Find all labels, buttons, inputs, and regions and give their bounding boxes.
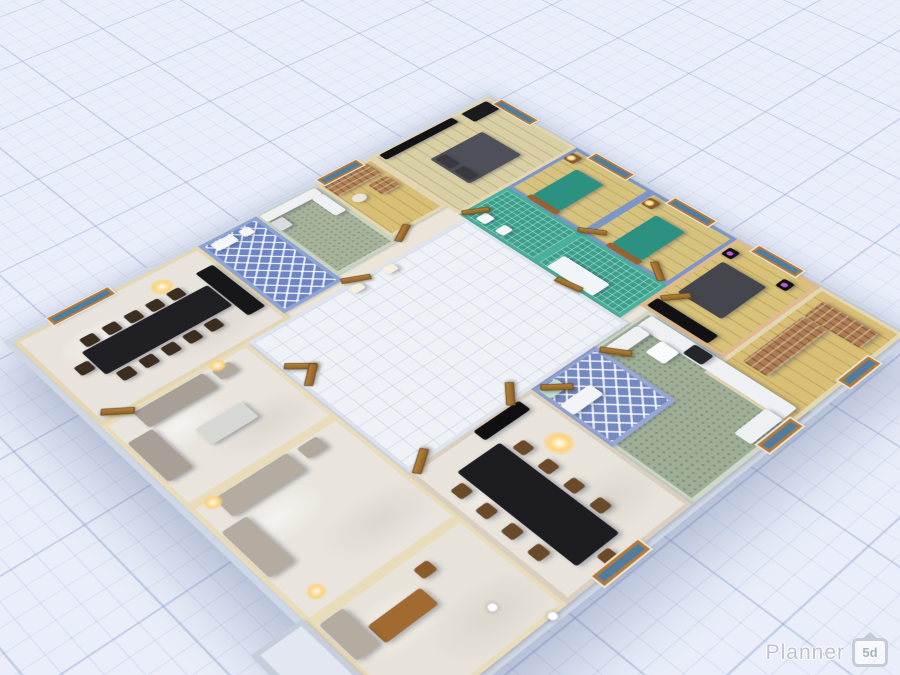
ground-grid <box>0 0 900 393</box>
door[interactable] <box>540 383 574 391</box>
viewport-3d[interactable] <box>0 0 900 675</box>
door[interactable] <box>505 382 516 405</box>
watermark-brand: Planner <box>766 641 845 665</box>
render-canvas: Planner 5d <box>0 0 900 675</box>
door[interactable] <box>100 406 135 415</box>
building <box>3 92 900 675</box>
watermark-badge-label: 5d <box>862 645 877 660</box>
planner5d-watermark: Planner 5d <box>766 638 888 667</box>
watermark-5d-badge: 5d <box>852 638 888 667</box>
